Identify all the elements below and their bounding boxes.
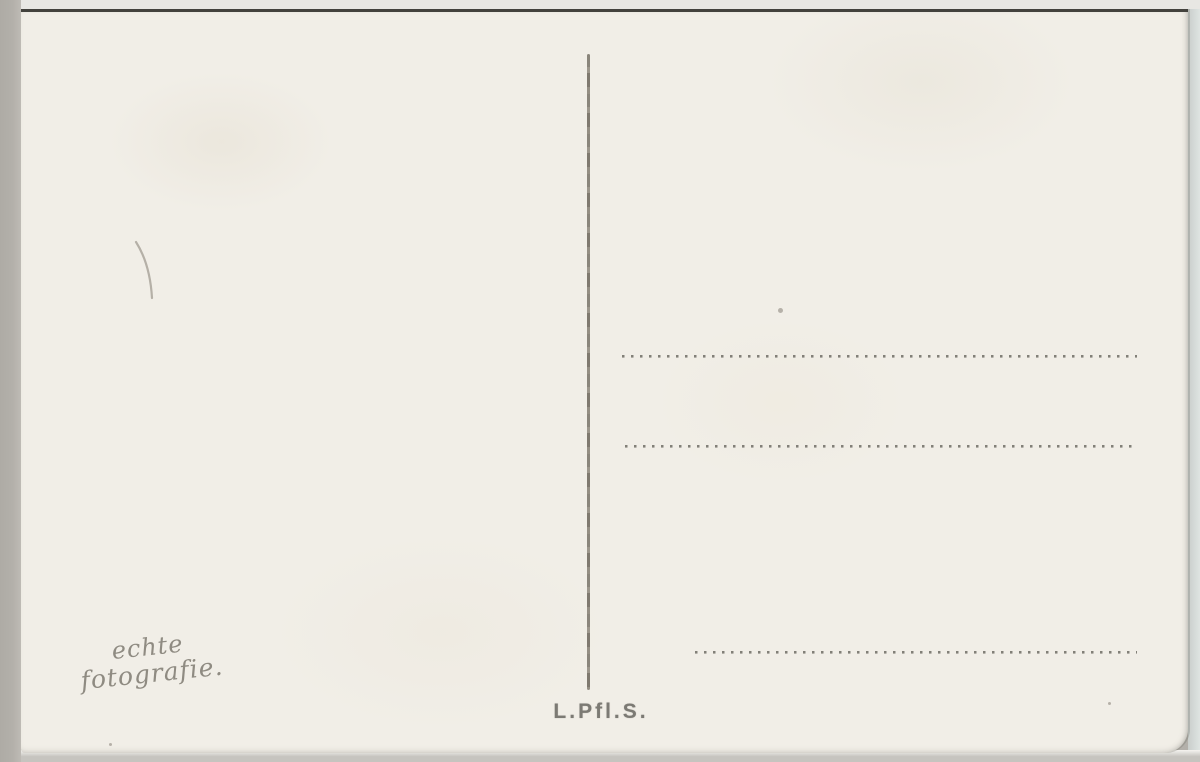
publisher-mark: L.Pfl.S. [431,700,771,724]
address-line-2 [625,445,1135,448]
pencil-mark [126,234,170,312]
postcard-scan: echte fotografie. L.Pfl.S. [0,0,1200,762]
paper-speck [109,743,112,746]
address-line-4 [695,651,1137,654]
paper-speck [778,308,783,313]
paper-speck [1108,702,1111,705]
postcard-back: echte fotografie. L.Pfl.S. [21,9,1188,753]
scan-edge-right [1188,9,1200,750]
address-line-1 [622,355,1137,358]
handwriting-note: echte fotografie. [77,627,225,696]
scan-edge-top [21,0,1200,9]
divider-line [587,54,590,690]
address-line-3 [695,566,1140,569]
scan-edge-left [0,0,21,762]
